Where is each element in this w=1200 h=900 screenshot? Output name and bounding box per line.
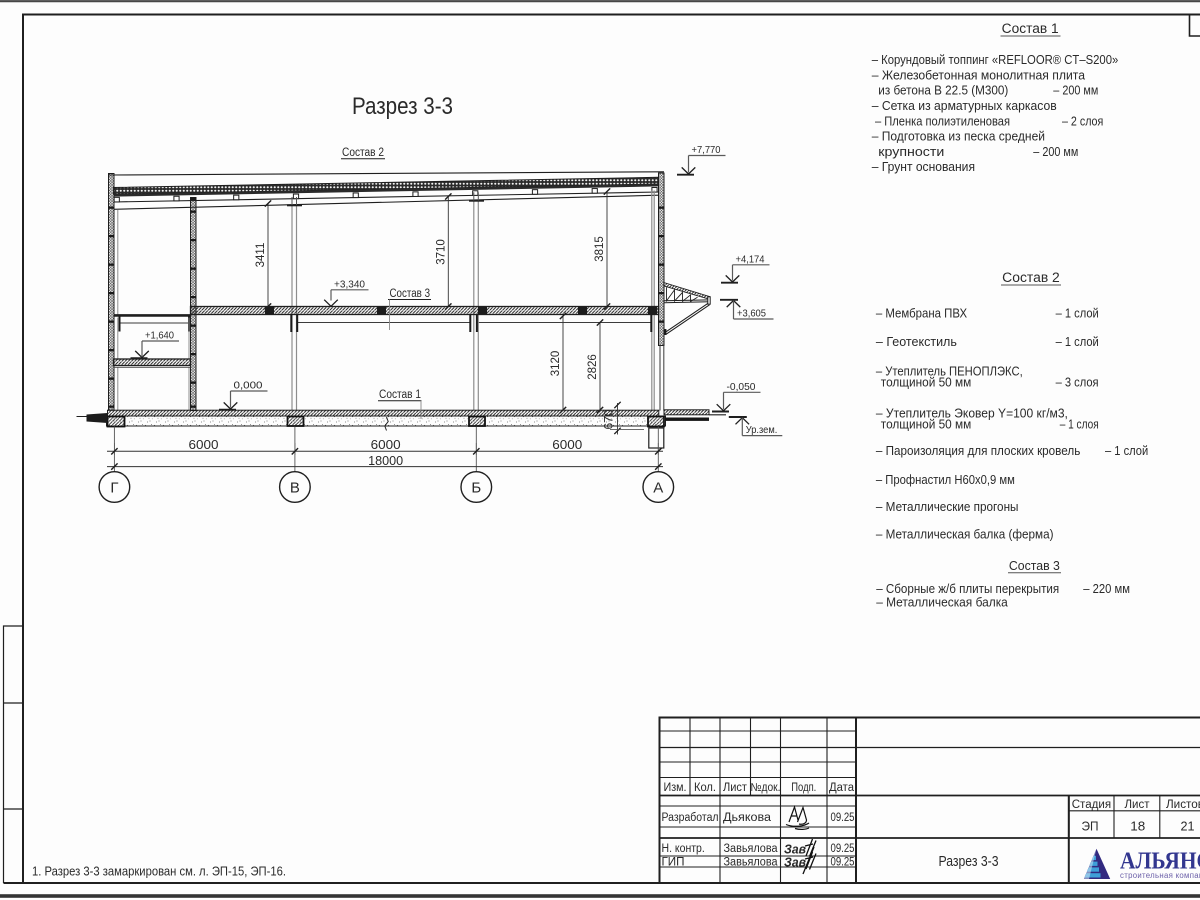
svg-text:– Мембрана ПВХ: – Мембрана ПВХ	[876, 306, 967, 321]
svg-text:3710: 3710	[435, 239, 447, 265]
svg-text:1. Разрез 3-3 замаркирован см.: 1. Разрез 3-3 замаркирован см. л. ЭП-15,…	[32, 865, 286, 879]
svg-text:– 1 слоя: – 1 слоя	[1060, 417, 1099, 432]
svg-text:Лист: Лист	[723, 782, 748, 794]
svg-text:-0,050: -0,050	[727, 381, 756, 393]
svg-text:+3,605: +3,605	[737, 308, 766, 320]
svg-text:– Металлическая балка: – Металлическая балка	[876, 595, 1008, 610]
svg-text:Н. контр.: Н. контр.	[662, 843, 705, 855]
svg-text:Разработал: Разработал	[662, 812, 719, 824]
svg-text:6000: 6000	[552, 437, 582, 452]
svg-text:Б: Б	[471, 479, 481, 496]
svg-text:Разрез 3-3: Разрез 3-3	[352, 93, 453, 120]
svg-text:Состав 2: Состав 2	[1002, 270, 1060, 285]
svg-text:толщиной 50 мм: толщиной 50 мм	[881, 417, 972, 432]
svg-text:3411: 3411	[255, 243, 267, 268]
svg-text:+7,770: +7,770	[692, 144, 721, 156]
svg-text:– 3 слоя: – 3 слоя	[1056, 375, 1099, 390]
svg-text:670: 670	[602, 409, 616, 429]
svg-text:– 2 слоя: – 2 слоя	[1062, 113, 1103, 128]
svg-text:+1,640: +1,640	[145, 330, 174, 342]
svg-text:+4,174: +4,174	[736, 253, 765, 265]
svg-text:строительная компания: строительная компания	[1120, 871, 1200, 880]
svg-text:Завьялова: Завьялова	[724, 843, 779, 855]
svg-text:– 1 слой: – 1 слой	[1056, 334, 1099, 349]
svg-text:Ур.зем.: Ур.зем.	[746, 424, 778, 436]
svg-text:Лист: Лист	[1125, 799, 1151, 811]
svg-text:№док.: №док.	[751, 782, 781, 794]
svg-text:крупности: крупности	[878, 144, 944, 159]
svg-text:– 1 слой: – 1 слой	[1056, 306, 1099, 321]
svg-text:– Геотекстиль: – Геотекстиль	[876, 334, 957, 349]
svg-text:Состав 1: Состав 1	[1002, 21, 1059, 36]
svg-text:из бетона В 22.5 (М300): из бетона В 22.5 (М300)	[878, 83, 1008, 98]
svg-text:– 220 мм: – 220 мм	[1083, 581, 1130, 596]
svg-text:Состав 2: Состав 2	[342, 147, 384, 159]
svg-text:3120: 3120	[550, 351, 562, 377]
svg-text:Г: Г	[110, 479, 118, 496]
svg-text:– Железобетонная монолитная п: – Железобетонная монолитная плита	[872, 67, 1086, 82]
svg-text:Изм.: Изм.	[664, 782, 687, 794]
svg-text:3815: 3815	[594, 236, 606, 262]
svg-text:А: А	[653, 479, 663, 496]
svg-text:– 200 мм: – 200 мм	[1053, 83, 1098, 98]
svg-text:Состав 3: Состав 3	[1009, 558, 1060, 573]
svg-text:Зав: Зав	[784, 856, 806, 870]
svg-text:– Пароизоляция для плоских кро: – Пароизоляция для плоских кровель	[876, 443, 1081, 458]
svg-text:Дьякова: Дьякова	[723, 812, 772, 824]
svg-text:Состав 1: Состав 1	[379, 389, 421, 401]
svg-text:18000: 18000	[368, 454, 403, 468]
svg-text:Состав 3: Состав 3	[390, 288, 431, 300]
svg-text:Кол.: Кол.	[694, 782, 716, 794]
svg-text:Завьялова: Завьялова	[724, 856, 779, 868]
svg-text:2826: 2826	[587, 354, 599, 380]
svg-text:6000: 6000	[371, 437, 401, 452]
svg-text:– Металлическая балка (ферма): – Металлическая балка (ферма)	[876, 527, 1054, 542]
svg-text:– Грунт основания: – Грунт основания	[872, 159, 975, 174]
svg-text:– 200 мм: – 200 мм	[1033, 144, 1078, 159]
svg-text:– Профнастил Н60х0,9 мм: – Профнастил Н60х0,9 мм	[876, 472, 1015, 487]
svg-text:– Подготовка из песка средней: – Подготовка из песка средней	[872, 129, 1045, 144]
svg-text:– 1 слой: – 1 слой	[1105, 443, 1148, 458]
svg-text:+3,340: +3,340	[334, 278, 365, 290]
svg-text:Подп.: Подп.	[791, 782, 816, 794]
svg-text:18: 18	[1130, 819, 1145, 834]
svg-text:6000: 6000	[189, 437, 219, 452]
svg-text:21: 21	[1181, 819, 1195, 834]
svg-text:09.25: 09.25	[831, 812, 855, 824]
svg-text:– Корундовый топпинг «REFLOOR®: – Корундовый топпинг «REFLOOR® CT–S200»	[872, 52, 1119, 67]
svg-text:09.25: 09.25	[831, 856, 855, 868]
svg-text:09.25: 09.25	[831, 843, 855, 855]
svg-text:– Пленка полиэтиленовая: – Пленка полиэтиленовая	[875, 113, 1010, 128]
svg-text:толщиной 50 мм: толщиной 50 мм	[881, 375, 972, 390]
svg-text:Зав: Зав	[784, 843, 806, 857]
svg-text:Разрез 3-3: Разрез 3-3	[939, 854, 999, 870]
svg-text:В: В	[290, 479, 300, 496]
svg-text:– Металлические прогоны: – Металлические прогоны	[876, 499, 1019, 514]
svg-text:Дата: Дата	[829, 782, 855, 794]
svg-text:– Сетка из арматурных каркасов: – Сетка из арматурных каркасов	[872, 98, 1057, 113]
svg-text:Листов: Листов	[1166, 799, 1200, 811]
svg-text:ГИП: ГИП	[662, 856, 685, 868]
svg-text:ЭП: ЭП	[1082, 819, 1099, 834]
svg-text:0,000: 0,000	[234, 380, 263, 392]
svg-text:Стадия: Стадия	[1072, 799, 1111, 811]
